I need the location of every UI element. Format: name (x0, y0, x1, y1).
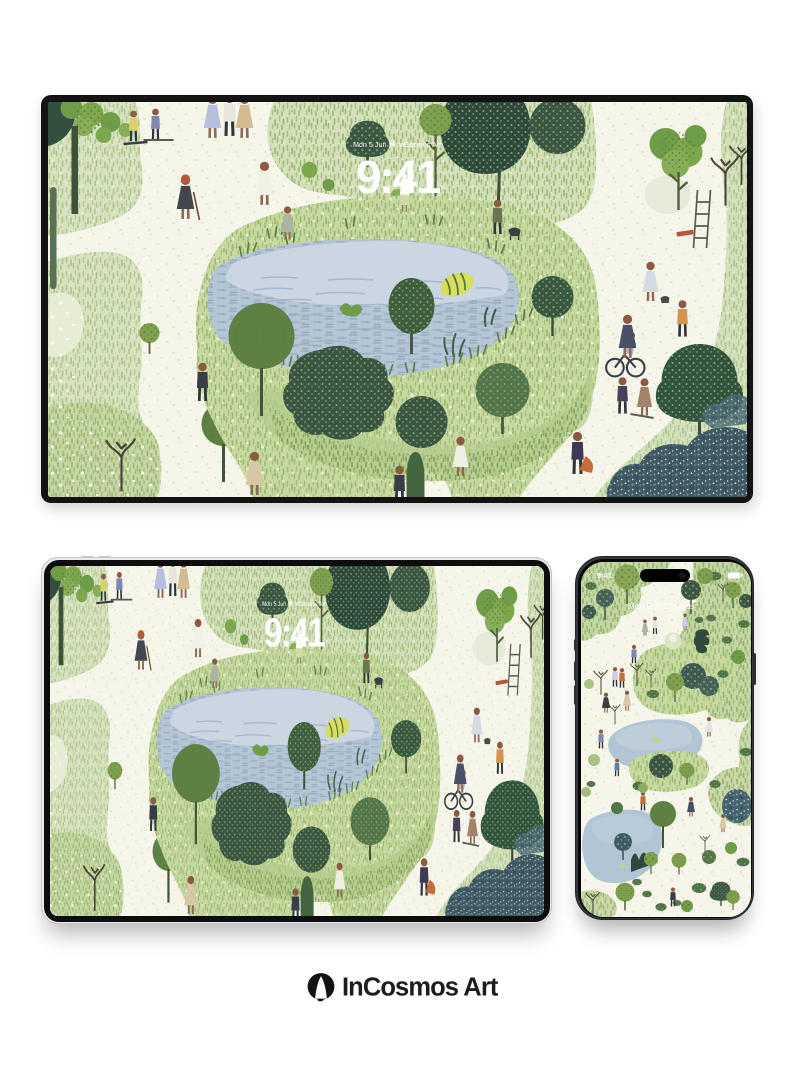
svg-text:InCosmos Art: InCosmos Art (342, 974, 499, 1002)
